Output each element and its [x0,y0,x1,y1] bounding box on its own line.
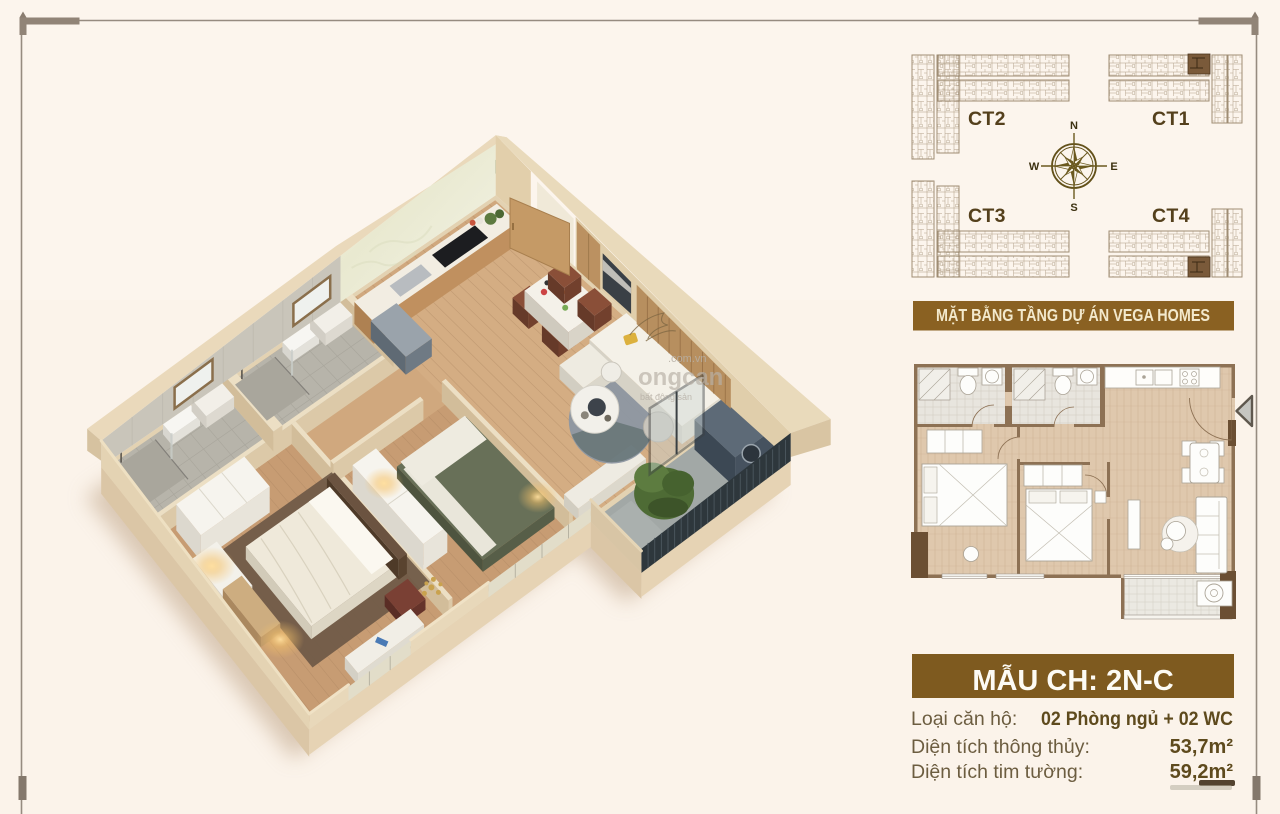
svg-text:Diện tích thông thủy:: Diện tích thông thủy: [911,736,1090,758]
svg-text:N: N [1070,120,1078,132]
svg-text:W: W [1029,161,1040,173]
svg-text:53,7m²: 53,7m² [1170,736,1234,758]
svg-text:02 Phòng ngủ + 02 WC: 02 Phòng ngủ + 02 WC [1041,708,1233,730]
svg-text:E: E [1110,161,1117,173]
svg-text:CT3: CT3 [968,205,1006,227]
svg-text:bất động sản: bất động sản [640,392,692,402]
svg-text:CT4: CT4 [1152,205,1190,227]
svg-text:S: S [1070,202,1077,214]
svg-text:59,2m²: 59,2m² [1170,761,1234,783]
svg-text:Diện tích tim tường:: Diện tích tim tường: [911,761,1083,783]
svg-text:Loại căn hộ:: Loại căn hộ: [911,708,1017,730]
svg-text:MẶT BẰNG TẦNG DỰ ÁN VEGA HOMES: MẶT BẰNG TẦNG DỰ ÁN VEGA HOMES [936,304,1210,325]
svg-text:CT2: CT2 [968,108,1006,130]
svg-text:ongcan: ongcan [638,364,723,391]
svg-text:MẪU CH: 2N-C: MẪU CH: 2N-C [972,663,1173,697]
svg-text:CT1: CT1 [1152,108,1190,130]
